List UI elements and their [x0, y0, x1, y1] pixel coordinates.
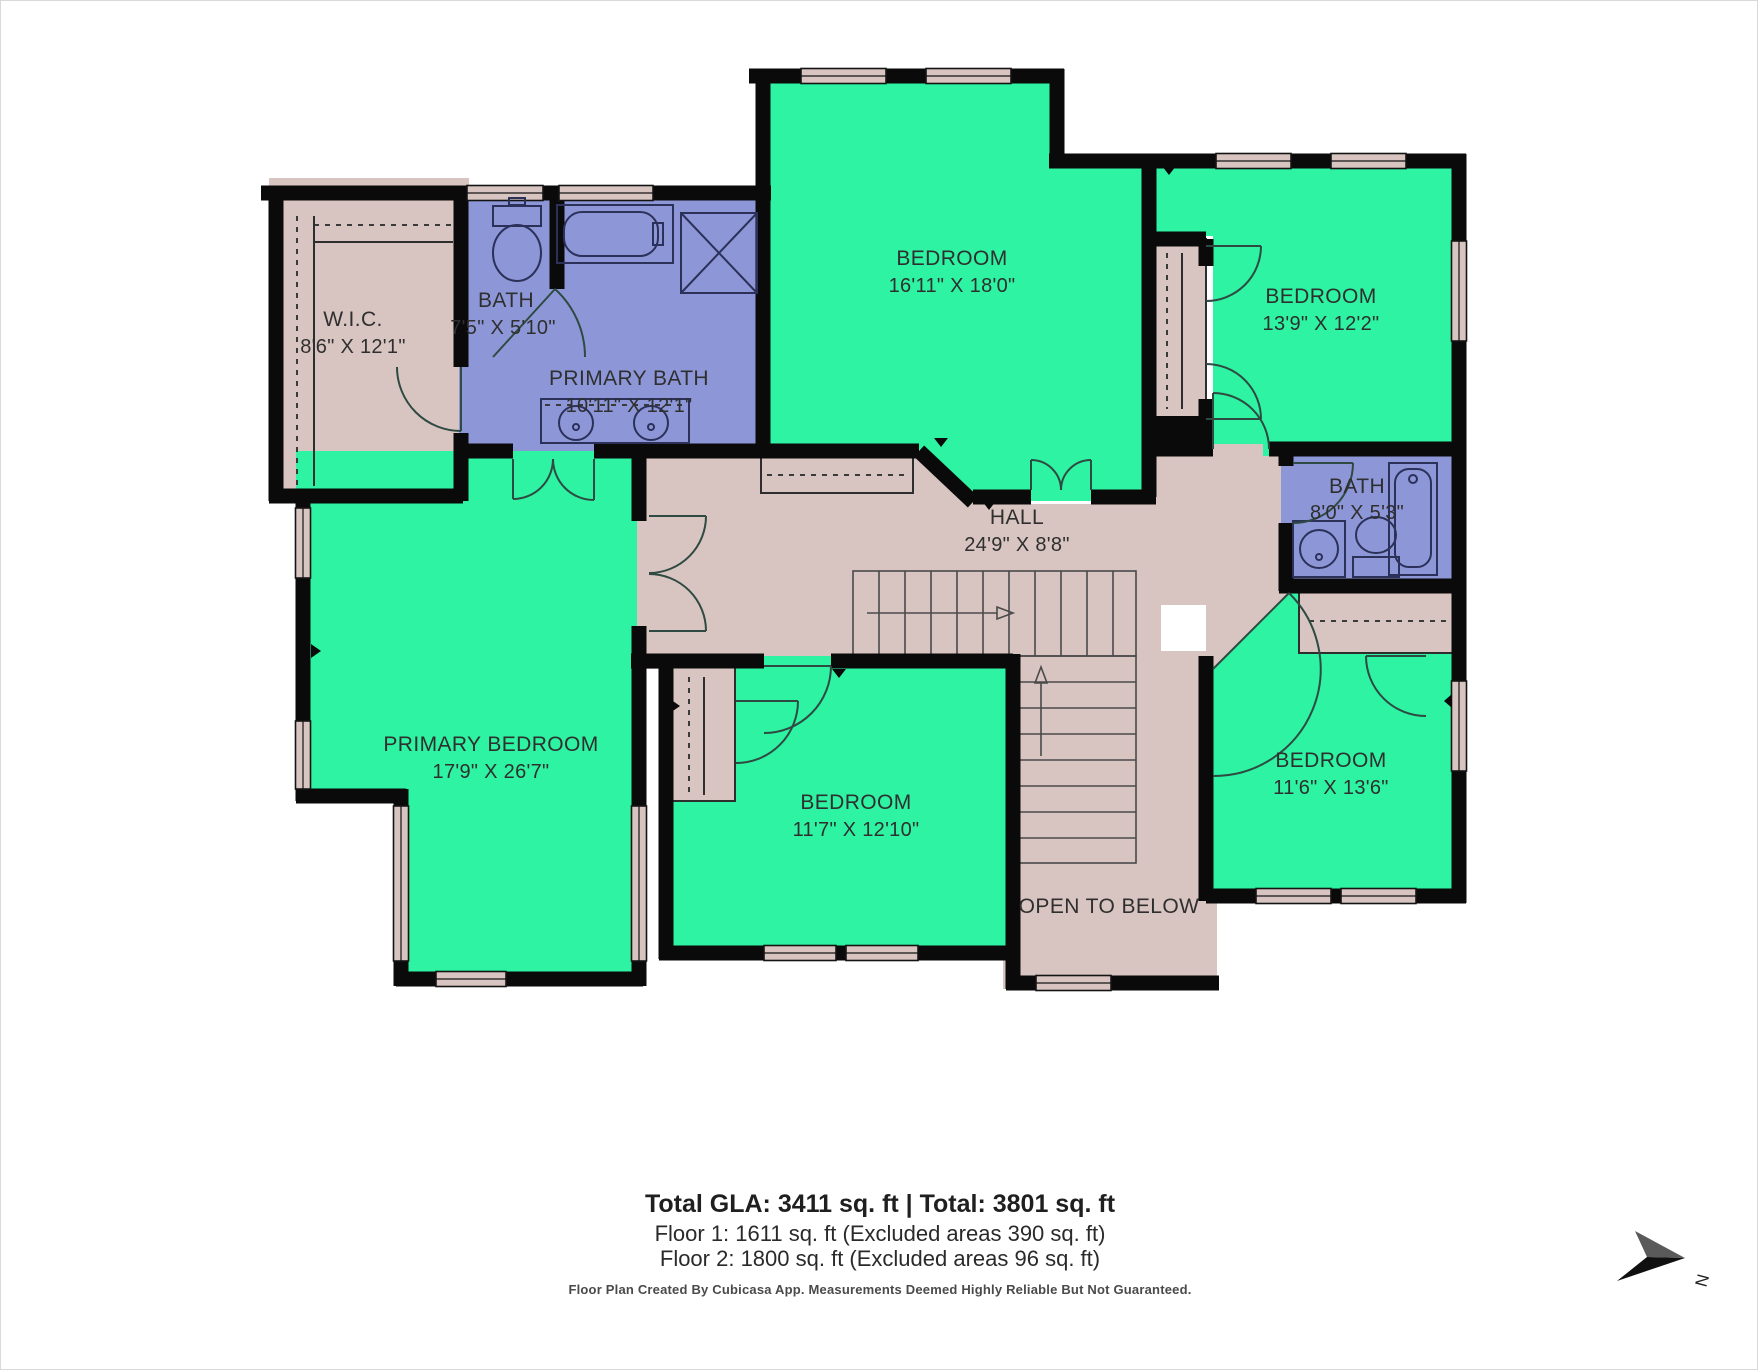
wall-landing-block	[1149, 416, 1213, 456]
room-label-bedroom-bottom-center: BEDROOM	[800, 791, 911, 814]
window	[296, 508, 311, 578]
north-label: N	[1691, 1272, 1713, 1289]
window	[846, 946, 918, 961]
window	[1341, 889, 1416, 904]
room-dims-bedroom-top-right: 13'9" X 12'2"	[1263, 313, 1380, 335]
room-label-hall: HALL	[990, 506, 1044, 529]
room-dims-primary-bath: 10'11" X 12'1"	[566, 395, 693, 417]
window	[632, 806, 647, 961]
window	[559, 186, 653, 201]
room-label-bedroom-top-right: BEDROOM	[1265, 285, 1376, 308]
floor-plan: W.I.C. 8'6" X 12'1" BATH 7'5" X 5'10" PR…	[1, 1, 1758, 1370]
room-dims-bedroom-bottom-center: 11'7" X 12'10"	[793, 819, 920, 841]
footer-gla-line: Total GLA: 3411 sq. ft | Total: 3801 sq.…	[645, 1190, 1116, 1218]
room-label-wic: W.I.C.	[323, 308, 383, 331]
window	[394, 806, 409, 961]
open-to-below-floor	[1003, 651, 1217, 989]
window	[1036, 976, 1111, 991]
window	[801, 69, 886, 84]
room-dims-wic: 8'6" X 12'1"	[300, 336, 406, 358]
room-dims-hall: 24'9" X 8'8"	[964, 534, 1070, 556]
north-arrow: N	[1617, 1231, 1712, 1289]
room-dims-primary-bedroom: 17'9" X 26'7"	[433, 761, 550, 783]
room-dims-bedroom-bottom-right: 11'6" X 13'6"	[1273, 777, 1388, 799]
window	[1452, 681, 1467, 771]
footer-floor1-line: Floor 1: 1611 sq. ft (Excluded areas 390…	[655, 1221, 1106, 1246]
room-label-bath-right: BATH	[1329, 475, 1385, 498]
room-label-bedroom-top-center: BEDROOM	[896, 247, 1007, 270]
window	[1452, 241, 1467, 341]
footer: Total GLA: 3411 sq. ft | Total: 3801 sq.…	[568, 1190, 1191, 1297]
north-arrow-lower-fin	[1617, 1257, 1685, 1281]
window	[926, 69, 1011, 84]
closet-bottom-center	[669, 663, 735, 801]
room-label-primary-bath: PRIMARY BATH	[549, 367, 709, 390]
room-label-primary-bedroom: PRIMARY BEDROOM	[383, 733, 598, 756]
north-arrow-upper-fin	[1635, 1231, 1685, 1258]
room-primary-bedroom-floor	[296, 451, 637, 986]
window	[467, 186, 543, 201]
room-dims-bedroom-top-center: 16'11" X 18'0"	[889, 275, 1016, 297]
landing-floor	[1141, 437, 1299, 605]
window	[1331, 154, 1406, 169]
window	[764, 946, 836, 961]
window	[436, 972, 506, 987]
window	[1256, 889, 1331, 904]
floor-plan-page: W.I.C. 8'6" X 12'1" BATH 7'5" X 5'10" PR…	[0, 0, 1758, 1370]
room-label-bedroom-bottom-right: BEDROOM	[1275, 749, 1386, 772]
room-dims-bath-right: 8'0" X 5'3"	[1310, 502, 1404, 524]
footer-disclaimer: Floor Plan Created By Cubicasa App. Meas…	[568, 1282, 1191, 1297]
room-label-bath-small: BATH	[478, 289, 534, 312]
label-open-to-below: OPEN TO BELOW	[1019, 895, 1200, 918]
footer-floor2-line: Floor 2: 1800 sq. ft (Excluded areas 96 …	[660, 1246, 1100, 1271]
window	[1216, 154, 1291, 169]
room-dims-bath-small: 7'5" X 5'10"	[450, 317, 556, 339]
window	[296, 721, 311, 789]
closet-top-right	[1151, 239, 1206, 421]
